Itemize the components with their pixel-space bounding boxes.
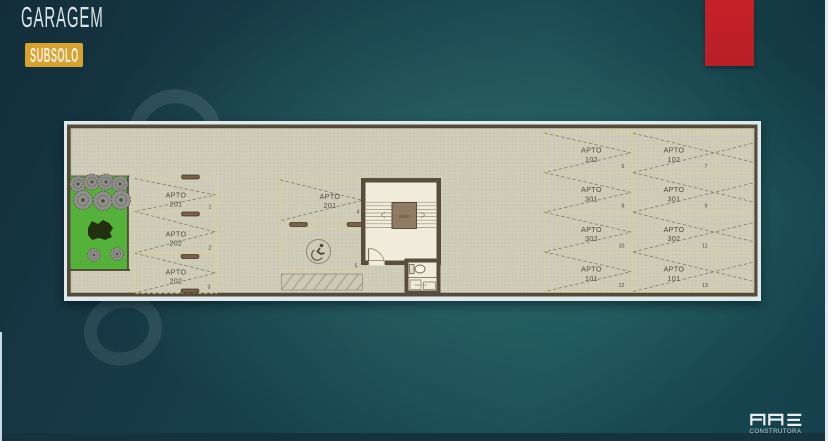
svg-text:6: 6 bbox=[622, 164, 625, 170]
svg-text:8: 8 bbox=[622, 204, 625, 210]
svg-text:APTO: APTO bbox=[320, 193, 341, 201]
svg-text:DEP.LIXO: DEP.LIXO bbox=[415, 283, 427, 287]
svg-text:APTO: APTO bbox=[166, 192, 187, 200]
svg-text:APTO: APTO bbox=[581, 186, 602, 194]
svg-text:101: 101 bbox=[667, 275, 680, 283]
svg-text:7: 7 bbox=[705, 164, 708, 170]
svg-text:ELEV: ELEV bbox=[399, 215, 409, 219]
svg-text:302: 302 bbox=[585, 235, 598, 243]
svg-text:APTO: APTO bbox=[664, 147, 685, 155]
svg-text:301: 301 bbox=[667, 196, 680, 204]
svg-text:10: 10 bbox=[619, 243, 625, 249]
svg-text:102: 102 bbox=[585, 156, 598, 164]
svg-text:4: 4 bbox=[357, 210, 360, 216]
svg-text:2: 2 bbox=[209, 246, 212, 252]
svg-text:3: 3 bbox=[208, 285, 211, 291]
svg-text:APTO: APTO bbox=[664, 226, 685, 234]
svg-text:1: 1 bbox=[209, 205, 212, 211]
svg-text:102: 102 bbox=[667, 156, 680, 164]
svg-text:301: 301 bbox=[585, 196, 598, 204]
svg-text:201: 201 bbox=[169, 201, 182, 209]
svg-text:APTO: APTO bbox=[581, 266, 602, 274]
svg-text:APTO: APTO bbox=[581, 147, 602, 155]
svg-text:11: 11 bbox=[702, 243, 707, 249]
svg-text:101: 101 bbox=[585, 275, 598, 283]
svg-text:9: 9 bbox=[705, 204, 708, 210]
svg-text:APTO: APTO bbox=[166, 231, 187, 239]
svg-text:APTO: APTO bbox=[581, 226, 602, 234]
svg-text:APTO: APTO bbox=[664, 186, 685, 194]
svg-text:302: 302 bbox=[667, 235, 680, 243]
svg-text:5: 5 bbox=[355, 264, 358, 270]
svg-text:202: 202 bbox=[169, 240, 182, 248]
svg-text:201: 201 bbox=[323, 202, 336, 210]
svg-text:13: 13 bbox=[702, 283, 708, 289]
svg-text:12: 12 bbox=[619, 283, 625, 289]
svg-text:APTO: APTO bbox=[166, 269, 187, 277]
svg-text:APTO: APTO bbox=[664, 266, 685, 274]
svg-text:202: 202 bbox=[169, 278, 182, 286]
